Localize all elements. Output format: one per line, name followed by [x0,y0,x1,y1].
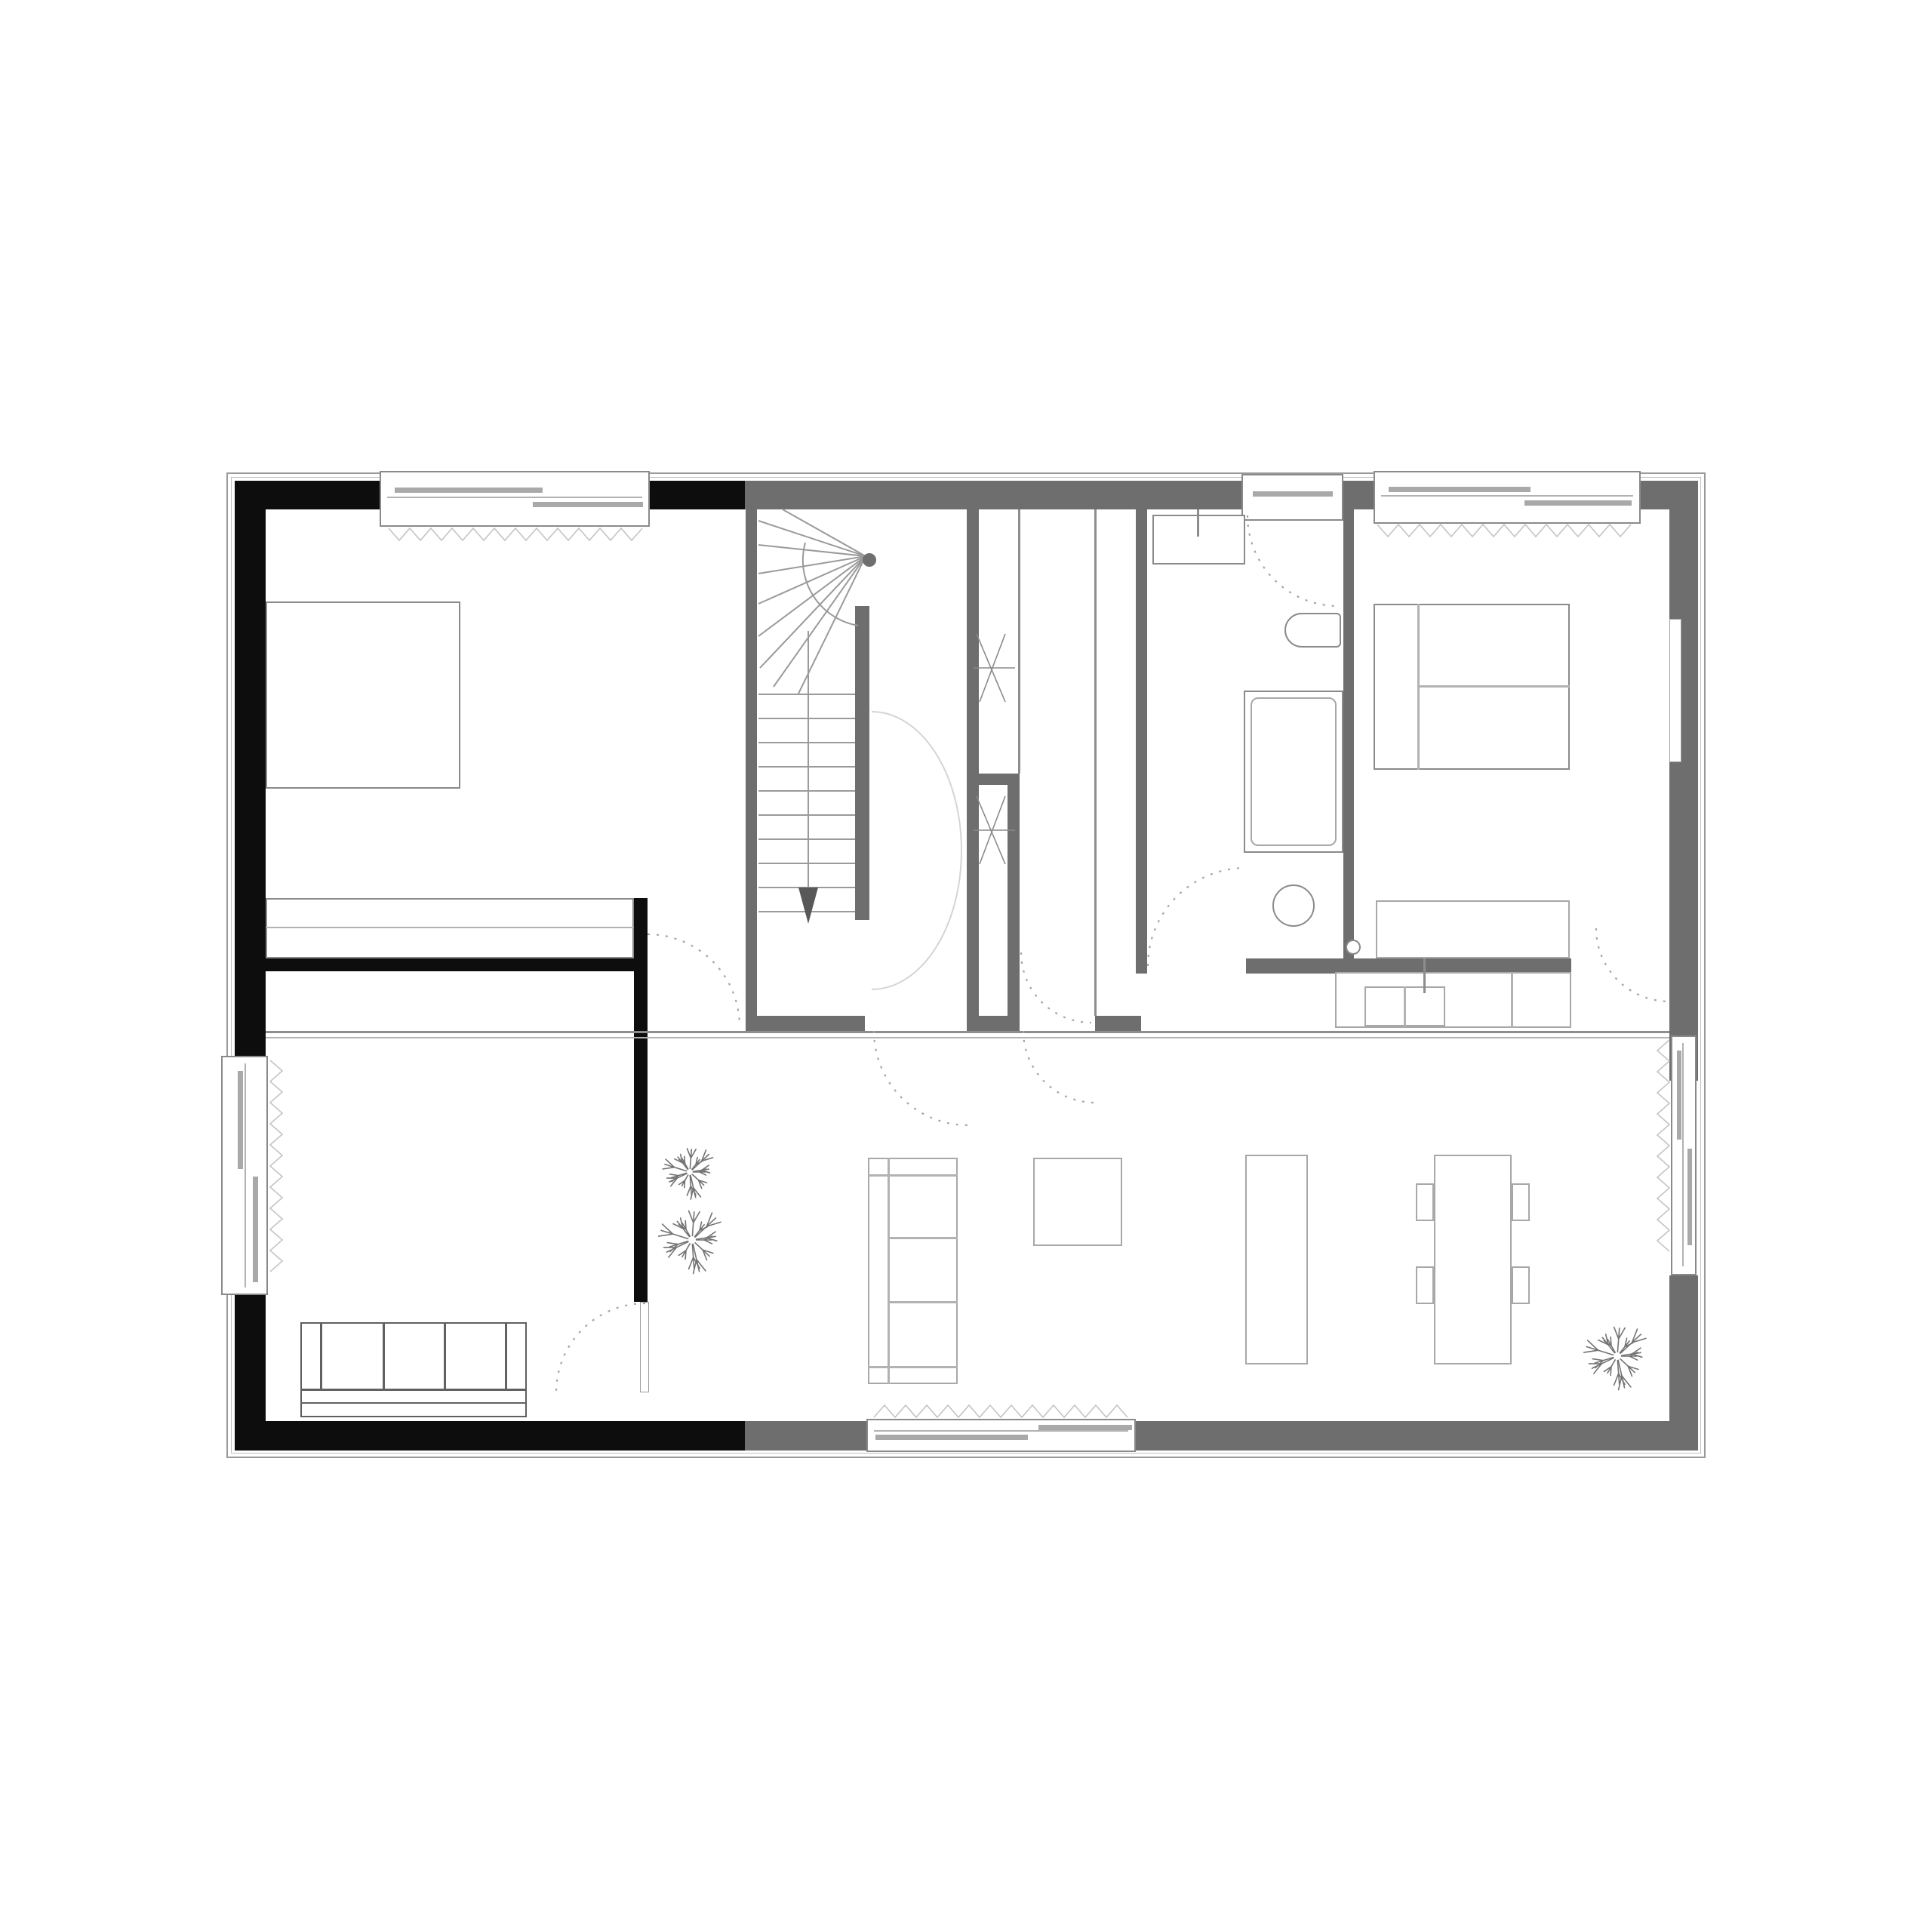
door-arc-hall-right [1023,1031,1095,1103]
bath-washer [1273,885,1314,926]
tree-terrace-2 [659,1211,721,1273]
bath-drain [1346,940,1360,954]
hatch-window-top-right [1377,525,1631,537]
stair-winder-line-7 [774,556,866,687]
tree-terrace-1 [663,1149,712,1199]
stair-newel-dot [863,553,876,567]
floor-plan-canvas [0,0,1932,1932]
hatch-window-right-lower [1657,1040,1669,1251]
hatch-window-bottom [874,1405,1128,1417]
hatch-window-top-left [389,528,642,540]
door-arc-stair-landing [872,712,961,989]
door-arc-bath-entry [1148,868,1246,966]
stair-down-arrow [798,888,818,924]
door-arc-hall-left [874,1031,968,1125]
door-arc-right-bedroom [1596,928,1669,1001]
stair-winder-line-3 [758,556,866,574]
tree-corner [1584,1327,1646,1389]
hatch-window-left [270,1060,282,1272]
door-arc-small-room [556,1303,645,1392]
door-arc-corridor-up [1021,952,1091,1023]
stair-winder-line-6 [760,556,866,668]
plan-overlay [0,0,1932,1932]
door-arc-bath-top [1247,515,1338,606]
door-arc-left-bedroom [648,934,740,1026]
